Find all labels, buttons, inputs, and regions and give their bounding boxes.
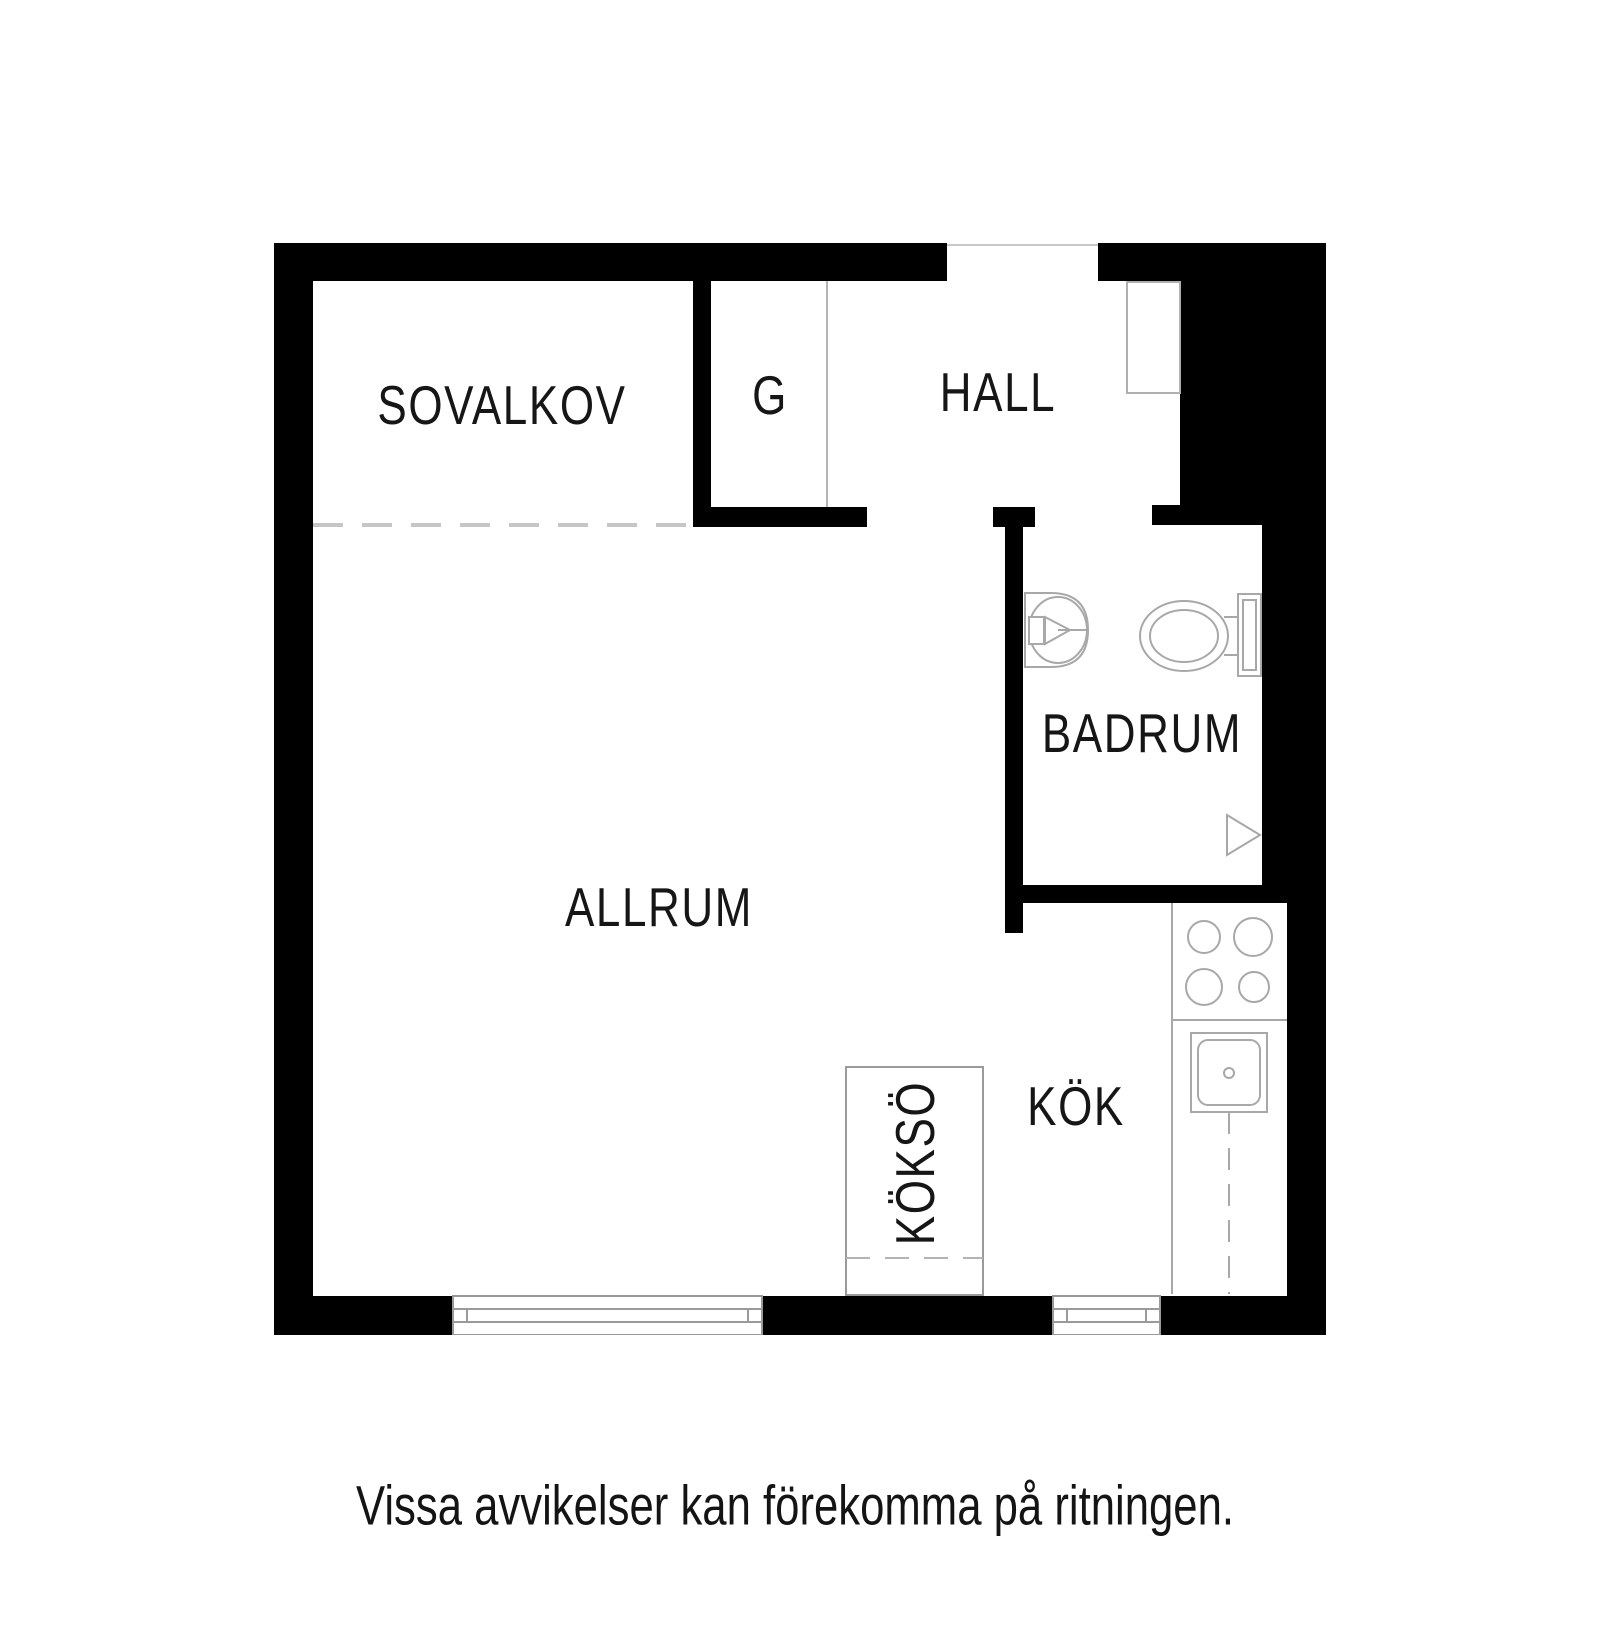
entry-door-leaf	[1127, 282, 1180, 393]
room-label-hall: HALL	[940, 360, 1056, 424]
room-label-kok: KÖK	[1027, 1074, 1125, 1138]
room-label-badrum: BADRUM	[1042, 701, 1242, 765]
washbasin-tap	[1029, 617, 1044, 644]
room-label-garderob: G	[752, 363, 788, 427]
toilet-tank	[1238, 594, 1261, 676]
toilet-bowl	[1140, 601, 1228, 671]
kitchen-sink-drain	[1224, 1068, 1234, 1078]
room-label-sovalkov: SOVALKOV	[377, 373, 626, 437]
room-label-kokso: KÖKSÖ	[883, 1081, 947, 1246]
disclaimer-caption: Vissa avvikelser kan förekomma på ritnin…	[356, 1473, 1234, 1538]
room-label-allrum: ALLRUM	[565, 875, 753, 939]
toilet-tank-inner	[1243, 600, 1256, 670]
floorplan: SOVALKOV G HALL BADRUM ALLRUM KÖK KÖKSÖ	[274, 243, 1326, 1335]
window	[453, 1296, 762, 1335]
stove-burner	[1188, 921, 1220, 953]
stove-burner	[1186, 969, 1222, 1005]
window	[1053, 1296, 1160, 1335]
stove-burner	[1239, 972, 1269, 1002]
floorplan-page: SOVALKOV G HALL BADRUM ALLRUM KÖK KÖKSÖ …	[0, 0, 1600, 1639]
kitchen-sink-outline	[1191, 1033, 1267, 1112]
stove-burner	[1234, 918, 1272, 956]
kitchen-sink-basin	[1198, 1040, 1260, 1105]
shower-symbol	[1227, 815, 1260, 855]
